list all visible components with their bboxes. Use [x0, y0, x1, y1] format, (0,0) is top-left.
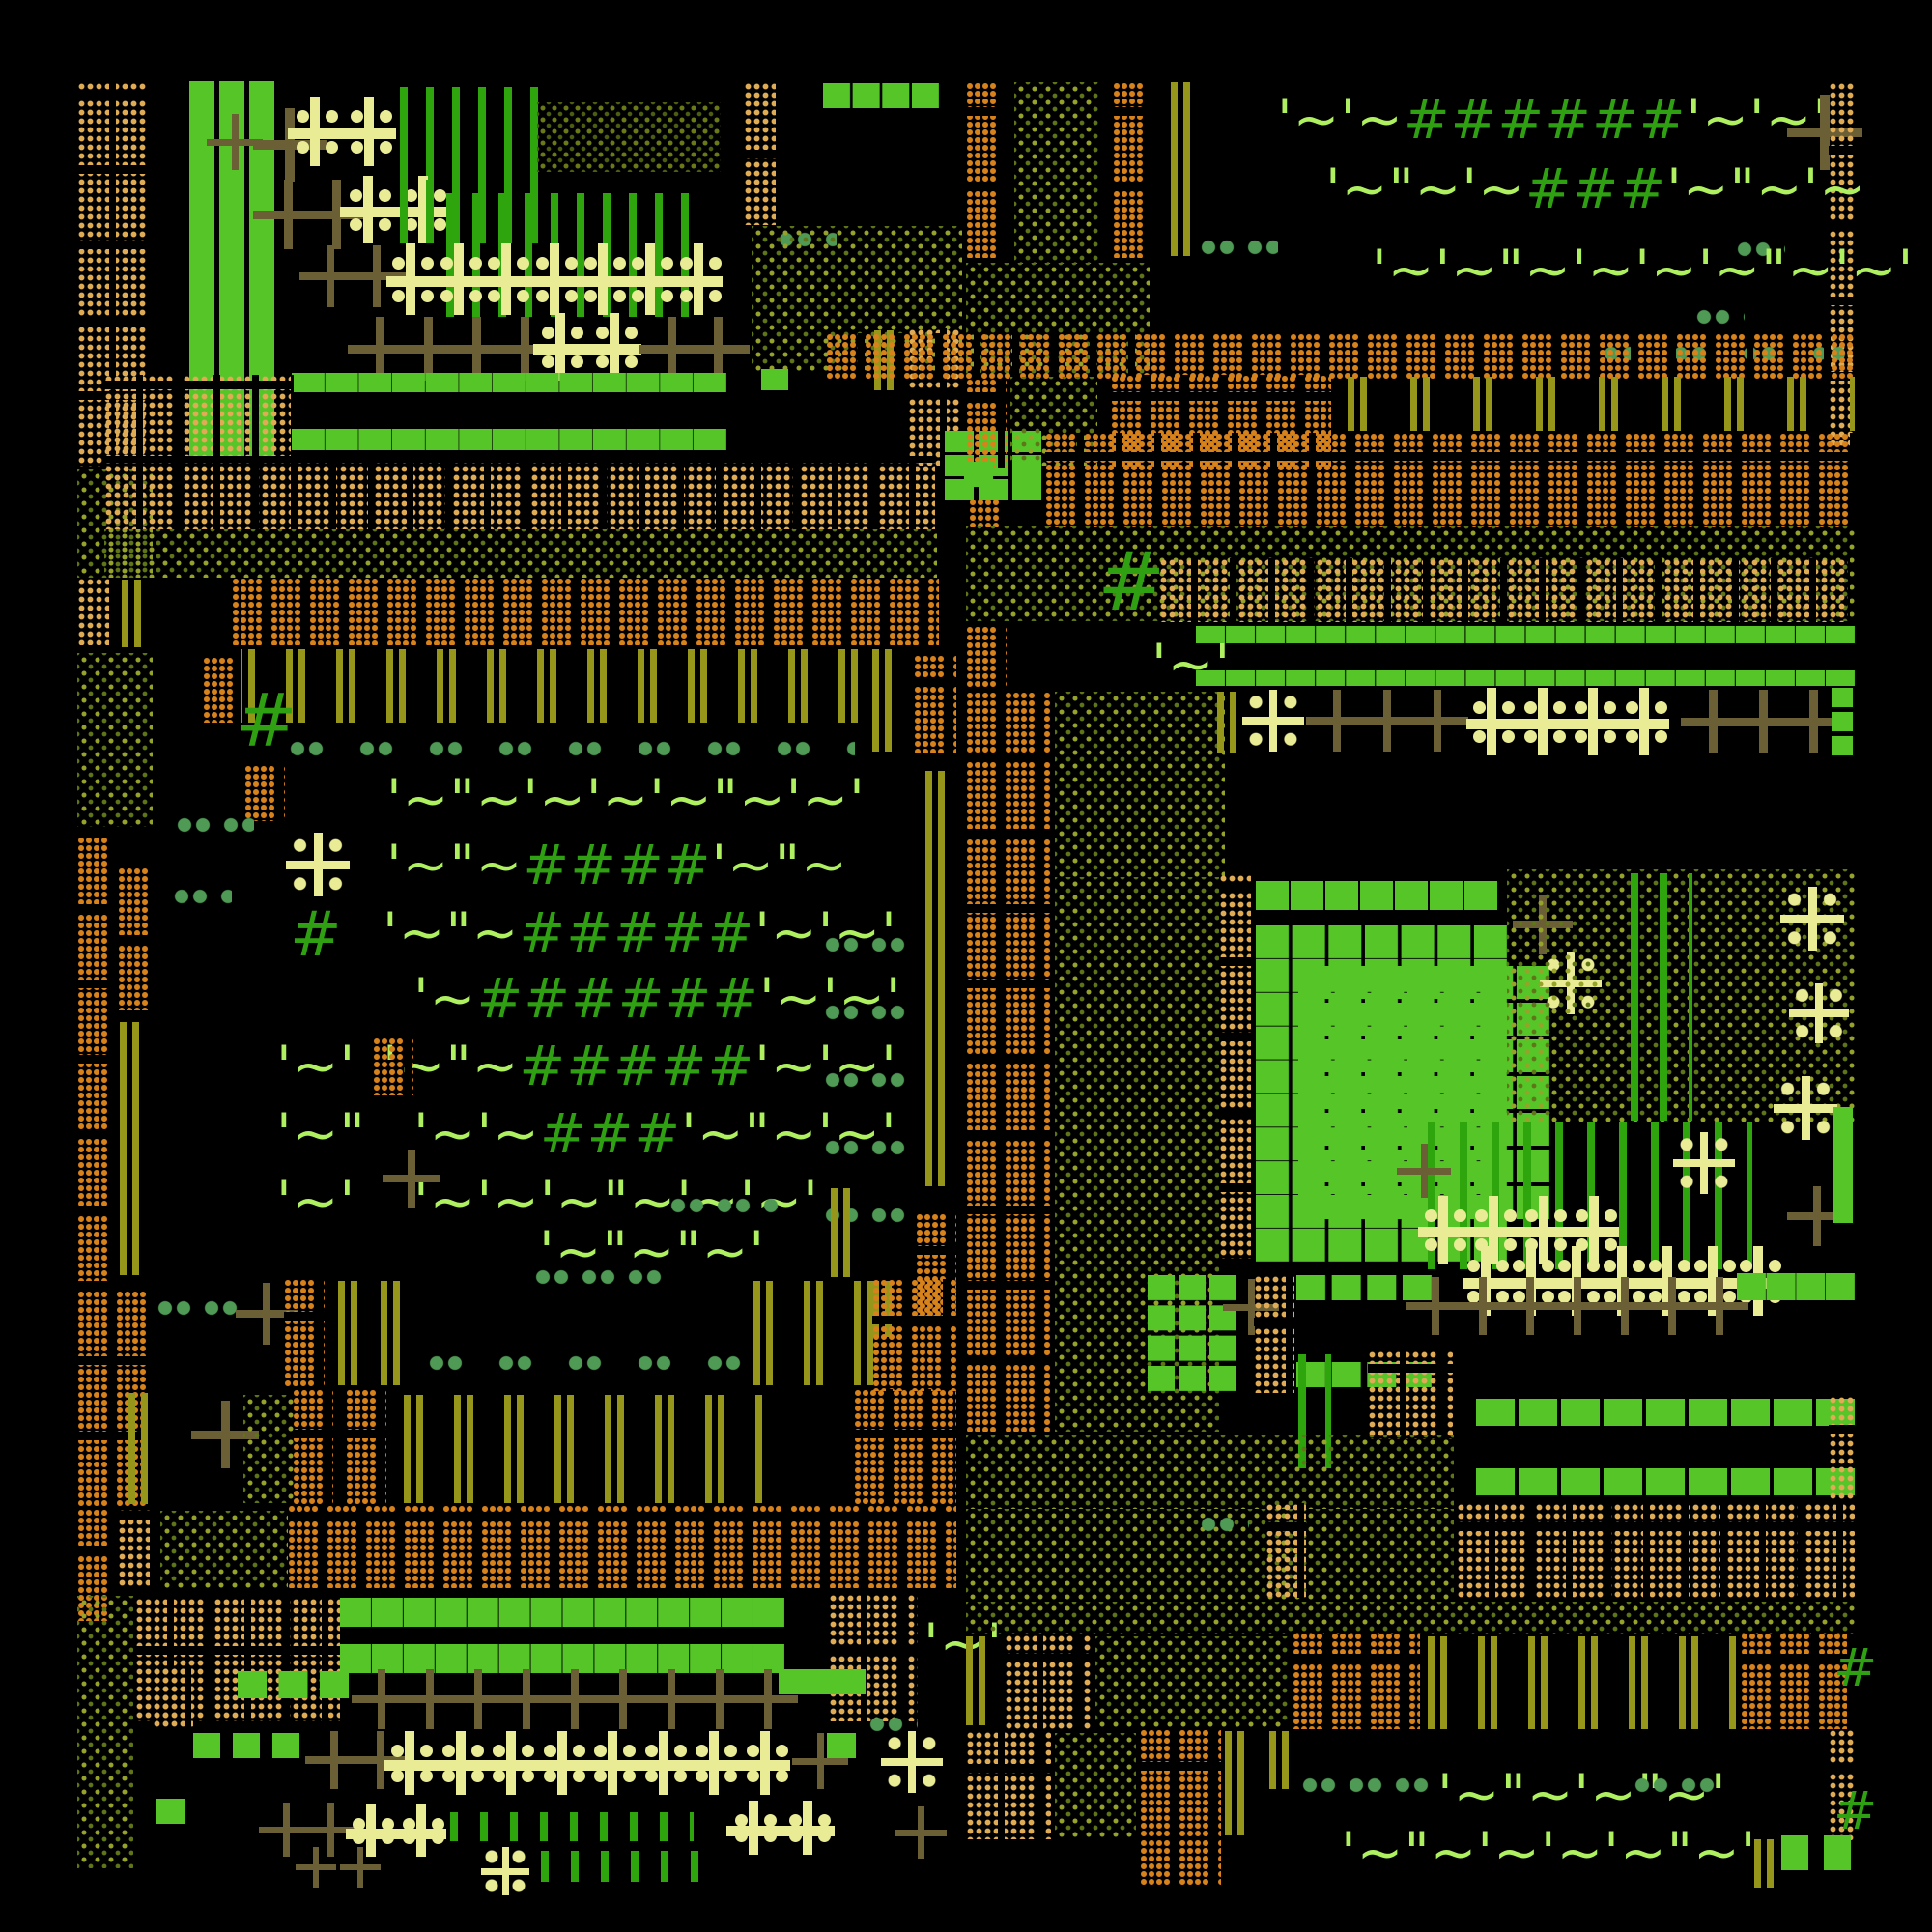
text-topright-1: '~'~######'~'~': [1277, 93, 1829, 148]
text-line-2-char: #: [523, 838, 570, 894]
text-line-8-char: ': [749, 1225, 765, 1280]
text-line-6-char: #: [634, 1107, 681, 1162]
text-line-5-char: #: [661, 1039, 708, 1094]
text-topright-2-char: #: [1619, 162, 1666, 217]
text-line-2-char: ': [711, 838, 727, 894]
glyph-hash-right: #: [1097, 541, 1166, 622]
sq-band2-left: [964, 462, 1041, 491]
text-line-7b: '~': [276, 1175, 355, 1230]
text-line-1-char: ~: [739, 773, 786, 828]
sqrow-rb-big2: [1476, 1468, 1855, 1499]
text-topright-1-char: ~: [1356, 93, 1404, 148]
text-line-3-char: ~: [472, 906, 520, 961]
shade-tan-rb-edge: [1829, 1396, 1855, 1500]
text-line-5-char: ": [445, 1039, 471, 1094]
dots-tr3: [1696, 309, 1745, 325]
crossrow-brown-r4b: [686, 317, 750, 381]
text-line-2-char: ": [449, 838, 475, 894]
glyph-hash-l3: #: [290, 904, 343, 966]
text-br1-char: ': [1711, 1768, 1727, 1823]
text-br2-char: ~: [1693, 1826, 1741, 1881]
text-line-7b-char: ': [276, 1175, 293, 1230]
text-topright-3-char: ': [1572, 243, 1588, 298]
shade-left-orange-col0: [77, 829, 116, 1281]
text-line-1-char: ': [523, 773, 539, 828]
dots-tr1: [1201, 240, 1278, 255]
shade-left-tan-2: [77, 578, 116, 645]
text-br2-char: ~: [1357, 1826, 1405, 1881]
text-topright-1-char: ': [1749, 93, 1766, 148]
shade-darkolive-top: [537, 102, 721, 172]
text-line-1-char: ': [786, 773, 803, 828]
text-topright-3-char: ': [1698, 243, 1715, 298]
text-topright-2-char: ': [1325, 162, 1342, 217]
text-topright-3-char: ': [1834, 243, 1851, 298]
shade-or-rb2: [1741, 1633, 1847, 1729]
text-line-4-char: ': [413, 972, 430, 1027]
text-topright-2-char: ": [1388, 162, 1414, 217]
text-line-1-char: ~: [603, 773, 650, 828]
rail-pale-rm1: [1466, 688, 1669, 755]
sqrow-rm-top: [1256, 881, 1497, 914]
text-topright-1-char: #: [1451, 93, 1498, 148]
text-br2-char: ~: [1620, 1826, 1667, 1881]
text-topright-3-char: ~: [1588, 243, 1635, 298]
text-topright-1-char: #: [1639, 93, 1687, 148]
shade-orange-row-left: [232, 578, 939, 645]
shade-tan-rb2: [1368, 1350, 1453, 1439]
text-line-4-char: ': [759, 972, 776, 1027]
text-line-1-char: ~: [476, 773, 524, 828]
text-br1: '~"~'~"~': [1437, 1768, 1727, 1823]
vbars-rm1: [1631, 873, 1692, 1121]
shade-tan-rb3: [1265, 1503, 1306, 1598]
shade-tan-rm1: [1219, 874, 1258, 1259]
text-line-6b-char: ~: [293, 1107, 340, 1162]
text-line-2-char: ~: [403, 838, 450, 894]
text-topright-2-char: #: [1573, 162, 1620, 217]
text-line-1-char: ~: [403, 773, 450, 828]
shade-or-bl1: [284, 1279, 325, 1387]
text-line-6-char: #: [540, 1107, 587, 1162]
text-line-5-char: ': [754, 1039, 771, 1094]
text-line-5b-char: ~: [293, 1039, 340, 1094]
text-topright-2: '~"~'~###'~"~'~: [1325, 162, 1866, 217]
bars-bl2: [753, 1281, 874, 1385]
bars-row-tr: [1348, 377, 1855, 431]
shade-tan-bl3: [153, 1667, 193, 1729]
text-line-1-char: ': [849, 773, 866, 828]
text-topright-1-char: #: [1545, 93, 1592, 148]
glyph-hash-right: #: [1097, 541, 1166, 622]
text-line-4-char: #: [666, 972, 713, 1027]
text-br1-char: ~: [1454, 1768, 1501, 1823]
sqrow-rb-2: [1737, 1273, 1855, 1306]
text-topright-3-char: ~: [1651, 243, 1698, 298]
shade-tan-rb-band: [1457, 1503, 1855, 1598]
text-topright-2-char: ~: [1819, 162, 1866, 217]
text-topright-3-char: ": [1761, 243, 1787, 298]
sq-notch: [761, 369, 794, 394]
bars-rb1: [966, 1636, 995, 1725]
vbars-bl: [450, 1812, 694, 1841]
text-br1-char: ": [1500, 1768, 1526, 1823]
vbars-green-tl1: [400, 87, 540, 188]
text-topright-1-char: ': [1340, 93, 1356, 148]
text-line-4-char: #: [618, 972, 666, 1027]
text-line-4-char: #: [476, 972, 524, 1027]
bars-rb2: [1225, 1731, 1252, 1835]
shade-od-bl1: [243, 1395, 294, 1503]
dots-bl2: [429, 1354, 762, 1372]
shade-sparse-belt-left: [104, 529, 937, 578]
text-line-3-char: #: [707, 906, 754, 961]
text-topright-1-char: #: [1497, 93, 1545, 148]
dots-l3: [825, 937, 914, 952]
text-line-3-char: ": [445, 906, 471, 961]
text-line-5-char: ~: [771, 1039, 818, 1094]
cross-pale-rm4: [1789, 983, 1849, 1043]
crossrow-brown-bl5: [340, 1847, 381, 1888]
rail-pale-r4: [533, 313, 641, 381]
dots-bl1: [157, 1300, 240, 1316]
text-line-3-char: ': [818, 906, 835, 961]
text-line-7b-char: ~: [293, 1175, 340, 1230]
cross-pale-rm3: [1780, 887, 1844, 951]
shade-od-rb2: [1095, 1636, 1289, 1727]
text-line-1: '~"~'~'~'~"~'~': [386, 773, 866, 828]
text-line-3-char: ~: [834, 906, 881, 961]
text-line-3-char: #: [613, 906, 661, 961]
text-line-3-char: ~: [771, 906, 818, 961]
text-line-1-char: ': [386, 773, 403, 828]
text-line-6-char: ': [681, 1107, 697, 1162]
sqrow-bl-1: [340, 1598, 784, 1631]
text-br2: '~"~'~'~'~"~': [1341, 1826, 1756, 1881]
bars-rb4: [1754, 1839, 1781, 1888]
text-br2-char: ": [1404, 1826, 1430, 1881]
text-topright-2-char: ': [1462, 162, 1478, 217]
cross-brown-bl4: [895, 1806, 947, 1859]
text-line-3-char: ': [754, 906, 771, 961]
text-topright-3-char: ": [1498, 243, 1524, 298]
shade-tan-rb5: [966, 1731, 1051, 1839]
dots-rb1: [1201, 1517, 1249, 1532]
dots-rb3: [1634, 1777, 1726, 1793]
shade-or-l5: [373, 1037, 413, 1095]
dots-l8b: [535, 1269, 666, 1285]
text-topright-2-char: #: [1525, 162, 1573, 217]
shade-or-tr2: [1113, 82, 1150, 258]
text-line-5b-char: ': [276, 1039, 293, 1094]
text-line-7-char: ~: [493, 1175, 540, 1230]
crossrow-brown-rm1: [1406, 690, 1468, 752]
sq-rm-edge2: [1833, 1107, 1855, 1223]
artwork-canvas: '~'~######'~'~''~"~'~###'~"~'~'~'~"~'~'~…: [0, 0, 1932, 1932]
text-line-2-char: #: [570, 838, 617, 894]
cross-pale-rm5: [1774, 1076, 1837, 1140]
shade-od-rb-row: [966, 1602, 1855, 1634]
text-line-1-char: ~: [539, 773, 586, 828]
rail-pale-big-top: [386, 243, 723, 315]
text-line-3: '~"~#####'~'~': [383, 906, 897, 961]
text-line-8-char: ": [675, 1225, 701, 1280]
sqrow-left-2: [292, 429, 726, 454]
shade-tan-bl2: [829, 1594, 918, 1721]
text-line-1-char: ~: [802, 773, 849, 828]
text-br2-char: ": [1667, 1826, 1693, 1881]
text-topright-1-char: ': [1277, 93, 1293, 148]
dots-l6: [825, 1140, 914, 1155]
bars-left-col1: [120, 1022, 149, 1275]
text-br1-char: ~: [1527, 1768, 1575, 1823]
text-line-4-char: #: [571, 972, 618, 1027]
text-line-5-char: ~: [472, 1039, 520, 1094]
text-topright-3-char: ~: [1787, 243, 1834, 298]
sq-rm-edge: [1832, 688, 1855, 755]
bars-left-col2: [122, 580, 151, 647]
bars-l8: [831, 1188, 860, 1277]
cross-pale-rm6: [1673, 1132, 1735, 1194]
shade-left-sparse-3: [77, 1596, 133, 1868]
shade-tan-band-left: [104, 456, 935, 529]
cross-pale-bl2: [481, 1847, 529, 1895]
shade-or-bl5: [854, 1389, 956, 1505]
text-line-6b-char: ": [339, 1107, 365, 1162]
text-line-1-char: ~: [666, 773, 713, 828]
bars-rb3: [1269, 1731, 1296, 1789]
shade-orange-topband: [826, 333, 1855, 380]
text-bl-char: ': [923, 1617, 940, 1672]
text-line-6-char: ~: [493, 1107, 540, 1162]
text-br2-char: ~: [1493, 1826, 1541, 1881]
text-line-5-char: #: [519, 1039, 566, 1094]
shade-orange-band2: [1045, 433, 1855, 527]
sqrow-rm-2: [1196, 670, 1855, 688]
sqrow-bl-5: [193, 1733, 299, 1762]
text-line-3-char: ': [881, 906, 897, 961]
text-br1-char: ~: [1663, 1768, 1711, 1823]
dots-l4: [825, 1005, 914, 1020]
text-br2-char: ~: [1557, 1826, 1605, 1881]
glyph-hash-l3: #: [290, 904, 343, 966]
text-topright-3-char: ~: [1851, 243, 1898, 298]
text-topright-2-char: ": [1730, 162, 1756, 217]
text-line-6-char: ~: [771, 1107, 818, 1162]
dots-l2: [174, 889, 232, 904]
text-mid-char: ': [1151, 638, 1168, 693]
text-line-2-char: ": [775, 838, 801, 894]
text-line-6-char: ~: [697, 1107, 745, 1162]
glyph-hash-left: #: [236, 684, 298, 757]
sq-top-right-of-left: [823, 83, 939, 112]
shade-od-rm1: [1055, 692, 1225, 877]
text-line-5-char: #: [566, 1039, 613, 1094]
shade-left-tan-4: [118, 1509, 156, 1586]
text-topright-1-char: ~: [1293, 93, 1341, 148]
text-line-5b: '~': [276, 1039, 355, 1094]
shade-od-rb-belt1: [966, 1435, 1454, 1509]
shade-tan-topmid: [744, 82, 779, 225]
shade-or-rb1: [1293, 1633, 1420, 1729]
text-line-6-char: ': [476, 1107, 493, 1162]
shade-or-rm0: [966, 626, 1007, 688]
shade-tan-band-right: [1159, 558, 1850, 622]
bars-bl3: [128, 1393, 157, 1504]
vbars-bl2: [541, 1851, 705, 1882]
text-line-1-char: ': [586, 773, 603, 828]
text-topright-2-char: ': [1804, 162, 1820, 217]
text-line-4-char: #: [712, 972, 759, 1027]
text-topright-1-char: #: [1592, 93, 1639, 148]
crossrow-brown-bl5: [296, 1847, 336, 1888]
sqrow-rb-big1: [1476, 1399, 1855, 1430]
sqrow-bl-6: [827, 1733, 867, 1762]
text-line-3-char: #: [566, 906, 613, 961]
text-line-4-char: #: [524, 972, 571, 1027]
text-topright-3-char: ~: [1714, 243, 1761, 298]
text-topright-2-char: ': [1666, 162, 1683, 217]
text-line-2-char: ~: [476, 838, 524, 894]
text-topright-3-char: ~: [1524, 243, 1572, 298]
text-topright-2-char: ~: [1756, 162, 1804, 217]
text-line-7-char: ': [803, 1175, 819, 1230]
text-line-5b-char: ': [339, 1039, 355, 1094]
glyph-hash-edge2: #: [1833, 1785, 1878, 1837]
sqrow-bl-3: [238, 1671, 349, 1702]
text-br2-char: ': [1477, 1826, 1493, 1881]
text-br1-char: ': [1574, 1768, 1590, 1823]
text-br1-char: ~: [1590, 1768, 1637, 1823]
bars-row-bl: [404, 1395, 766, 1503]
bars-textblock-right: [925, 771, 952, 1186]
dots-l5: [825, 1072, 914, 1088]
text-line-2-char: #: [617, 838, 665, 894]
text-line-3-char: ~: [399, 906, 446, 961]
bars-left-edge-text: [872, 649, 901, 752]
text-line-6b-char: ': [276, 1107, 293, 1162]
text-line-4-char: ~: [776, 972, 823, 1027]
cross-pale-l2: [286, 833, 350, 896]
rail-pale-bl3: [726, 1801, 835, 1855]
dots-bl3: [869, 1718, 918, 1731]
shade-or-rb4: [1140, 1839, 1221, 1886]
text-br1-char: ': [1437, 1768, 1454, 1823]
text-br2-char: ': [1541, 1826, 1557, 1881]
bars-row-rb: [1428, 1636, 1737, 1729]
shade-or-bl4: [346, 1389, 386, 1505]
text-line-3-char: #: [519, 906, 566, 961]
bars-row-left: [236, 649, 868, 723]
shade-or-sml2: [914, 655, 956, 753]
text-line-3-char: ': [383, 906, 399, 961]
text-br2-char: ': [1604, 1826, 1620, 1881]
cross-pale-bl: [881, 1731, 943, 1793]
shade-orange-row-bl: [288, 1505, 956, 1588]
text-line-1-char: ": [449, 773, 475, 828]
sqrow-left-1: [292, 373, 726, 396]
text-topright-2-char: ~: [1478, 162, 1525, 217]
shade-od-tr1: [1014, 82, 1099, 264]
sqrow-bl-4: [779, 1669, 866, 1698]
text-line-5-char: #: [707, 1039, 754, 1094]
text-line-1-char: ": [713, 773, 739, 828]
shade-tan-rb4: [1005, 1634, 1092, 1729]
text-line-5: '~"~#####'~'~': [383, 1039, 897, 1094]
text-topright-3-char: ': [1634, 243, 1651, 298]
text-line-6-char: ": [745, 1107, 771, 1162]
text-topright-2-char: ~: [1683, 162, 1730, 217]
cross-pale-rm1: [1242, 690, 1304, 752]
bars-tr1: [1171, 82, 1200, 256]
shade-tan-mid1: [104, 375, 294, 456]
text-topright-1-char: ~: [1702, 93, 1749, 148]
dots-rb2: [1302, 1777, 1433, 1793]
shade-left-orange-col1: [118, 867, 155, 1010]
text-topright-2-char: ~: [1342, 162, 1389, 217]
shade-or-col23: [966, 379, 1007, 468]
text-topright-1-char: #: [1404, 93, 1451, 148]
cross-brown-rm4: [1397, 1144, 1451, 1198]
dots-row-left: [290, 740, 855, 757]
text-topright-2-char: ~: [1415, 162, 1463, 217]
dots-l1: [177, 817, 254, 833]
text-line-8-char: ~: [702, 1225, 750, 1280]
glyph-hash-edge2: #: [1833, 1785, 1878, 1837]
shade-or-rm1: [966, 692, 1051, 1432]
cross-brown-l7: [383, 1150, 440, 1207]
text-line-3-char: #: [661, 906, 708, 961]
bars-bl1: [338, 1281, 415, 1385]
text-br2-char: ~: [1431, 1826, 1478, 1881]
glyph-hash-edge1: #: [1833, 1642, 1878, 1694]
shade-od-rb3: [1055, 1733, 1136, 1837]
text-line-6b: '~": [276, 1107, 366, 1162]
rail-pale-bl: [384, 1731, 790, 1795]
text-line-2-char: #: [665, 838, 712, 894]
sqrow-bl-7: [156, 1799, 189, 1828]
text-line-2-char: ~: [801, 838, 848, 894]
text-br2-char: ': [1341, 1826, 1357, 1881]
text-line-2-char: ~: [727, 838, 775, 894]
text-br1-char: ": [1637, 1768, 1663, 1823]
sqrow-rb-edge: [1781, 1835, 1851, 1876]
glyph-hash-edge1: #: [1833, 1642, 1878, 1694]
rail-pale-tl1: [288, 97, 396, 166]
text-topright-3-char: ': [1372, 243, 1388, 298]
text-line-4-char: ~: [430, 972, 477, 1027]
text-topright-3: '~'~"~'~'~'~"~'~': [1372, 243, 1914, 298]
text-topright-3-char: ~: [1451, 243, 1498, 298]
text-line-1-char: ': [649, 773, 666, 828]
text-line-7b-char: ': [339, 1175, 355, 1230]
text-line-7-char: ': [476, 1175, 493, 1230]
shade-or-rb3: [1140, 1729, 1221, 1837]
sqrow-rm-1: [1196, 626, 1855, 645]
shade-left-sparse-2: [77, 653, 153, 827]
dots-l8a: [670, 1198, 779, 1213]
shade-od-bl2: [160, 1511, 288, 1588]
shade-or-tr1: [966, 82, 1005, 258]
shade-tan-rb1: [1254, 1275, 1294, 1393]
shade-or-bl3: [293, 1389, 333, 1505]
text-line-2: '~"~####'~"~: [386, 838, 848, 894]
text-line-5-char: #: [613, 1039, 661, 1094]
text-topright-3-char: ': [1435, 243, 1451, 298]
text-line-6-char: #: [587, 1107, 635, 1162]
text-topright-3-char: ': [1898, 243, 1915, 298]
text-topright-3-char: ~: [1388, 243, 1435, 298]
